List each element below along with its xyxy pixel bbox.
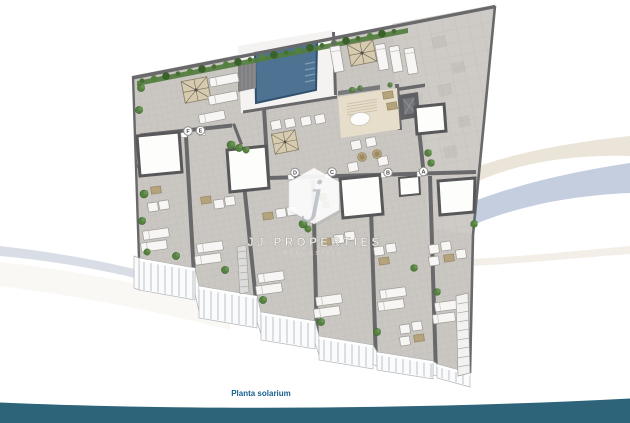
watermark-tagline: REAL ESTATE <box>283 251 342 257</box>
real-estate-floorplan-page: F E D C B A j JJ PROPERTIES REAL ESTATE … <box>0 0 630 423</box>
unit-label-c: C <box>328 168 337 177</box>
stairwell-box <box>340 175 383 218</box>
svg-text:A: A <box>422 170 426 176</box>
stairwell-box <box>137 132 182 176</box>
stairwell-box <box>438 178 475 215</box>
external-stair <box>456 293 470 376</box>
parasol <box>271 130 298 154</box>
watermark-name: JJ PROPERTIES <box>247 237 383 249</box>
plan-caption: Planta solarium <box>231 389 291 398</box>
stairwell-box <box>415 104 446 134</box>
pool-platform <box>238 62 256 92</box>
svg-text:B: B <box>386 171 390 177</box>
footer-wave <box>0 399 630 423</box>
stairwell-box <box>227 146 269 192</box>
svg-text:E: E <box>199 129 203 135</box>
stairwell-box <box>399 176 420 196</box>
parasol <box>347 40 377 67</box>
swoosh-right-thin <box>470 246 630 266</box>
unit-label-a: A <box>419 167 428 176</box>
svg-text:D: D <box>293 171 297 177</box>
bar-area <box>338 83 400 138</box>
floorplan-image: F E D C B A j JJ PROPERTIES REAL ESTATE … <box>0 0 630 423</box>
svg-text:C: C <box>330 170 334 176</box>
parasol <box>181 77 211 104</box>
railing-left-cap <box>134 256 139 290</box>
unit-label-f: F <box>184 127 193 136</box>
unit-label-e: E <box>196 126 205 135</box>
unit-label-b: B <box>384 168 393 177</box>
unit-label-d: D <box>291 168 300 177</box>
